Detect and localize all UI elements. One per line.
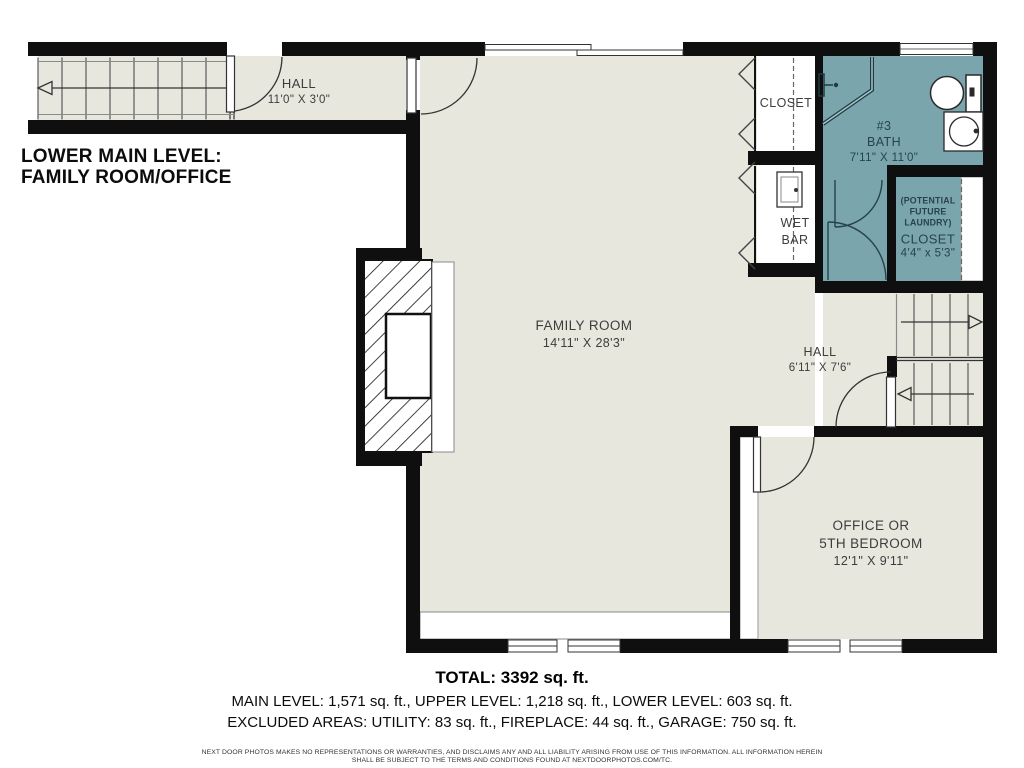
room-dims: 7'11" X 11'0" (850, 150, 918, 166)
room-name: BAR (781, 232, 810, 249)
wet-bar-sink-icon (777, 172, 802, 207)
family-room-windows (508, 640, 620, 652)
toilet-icon (931, 75, 982, 112)
fireplace-icon (356, 248, 454, 466)
room-name: 5TH BEDROOM (819, 535, 922, 553)
room-note: FUTURE (901, 207, 956, 218)
room-number: #3 (850, 118, 918, 134)
sink-vanity-icon (944, 112, 983, 151)
page-title: LOWER MAIN LEVEL: FAMILY ROOM/OFFICE (21, 146, 232, 188)
bath-window (900, 44, 973, 55)
room-dims: 4'4" x 5'3" (901, 247, 956, 261)
room-note: (POTENTIAL (901, 196, 956, 207)
window-well-band (420, 612, 733, 639)
disclaimer-line1: NEXT DOOR PHOTOS MAKES NO REPRESENTATION… (0, 749, 1024, 757)
page-title-line1: LOWER MAIN LEVEL: (21, 146, 232, 167)
disclaimer-line2: SHALL BE SUBJECT TO THE TERMS AND CONDIT… (0, 757, 1024, 765)
total-area-text: TOTAL: 3392 sq. ft. (0, 668, 1024, 688)
hall-lower-label: HALL 6'11" X 7'6" (789, 344, 852, 376)
bath-label: #3 BATH 7'11" X 11'0" (850, 118, 918, 166)
room-name: FAMILY ROOM (536, 317, 633, 335)
room-name: HALL (789, 344, 852, 360)
room-name: HALL (268, 76, 331, 92)
floorplan-page: LOWER MAIN LEVEL: FAMILY ROOM/OFFICE HAL… (0, 0, 1024, 768)
page-title-line2: FAMILY ROOM/OFFICE (21, 167, 232, 188)
level-areas-text: MAIN LEVEL: 1,571 sq. ft., UPPER LEVEL: … (0, 693, 1024, 710)
room-dims: 12'1" X 9'11" (819, 553, 922, 569)
disclaimer: NEXT DOOR PHOTOS MAKES NO REPRESENTATION… (0, 749, 1024, 765)
hall-top-label: HALL 11'0" X 3'0" (268, 76, 331, 108)
room-dims: 11'0" X 3'0" (268, 92, 331, 108)
floorplan-drawing (0, 0, 1024, 768)
office-label: OFFICE OR 5TH BEDROOM 12'1" X 9'11" (819, 517, 922, 569)
room-name: BATH (850, 134, 918, 150)
room-dims: 6'11" X 7'6" (789, 360, 852, 376)
family-room-label: FAMILY ROOM 14'11" X 28'3" (536, 317, 633, 351)
laundry-closet-label: (POTENTIAL FUTURE LAUNDRY) CLOSET 4'4" x… (901, 196, 956, 261)
room-dims: 14'11" X 28'3" (536, 335, 633, 351)
room-name: CLOSET (901, 232, 956, 247)
room-note: LAUNDRY) (901, 218, 956, 229)
room-name: WET (781, 215, 810, 232)
sliding-glass-door (485, 45, 683, 56)
wet-bar-label: WET BAR (781, 215, 810, 249)
room-name: CLOSET (760, 95, 812, 111)
office-windows (788, 640, 902, 652)
room-name: OFFICE OR (819, 517, 922, 535)
excluded-areas-text: EXCLUDED AREAS: UTILITY: 83 sq. ft., FIR… (0, 714, 1024, 731)
closet-label: CLOSET (760, 95, 812, 111)
